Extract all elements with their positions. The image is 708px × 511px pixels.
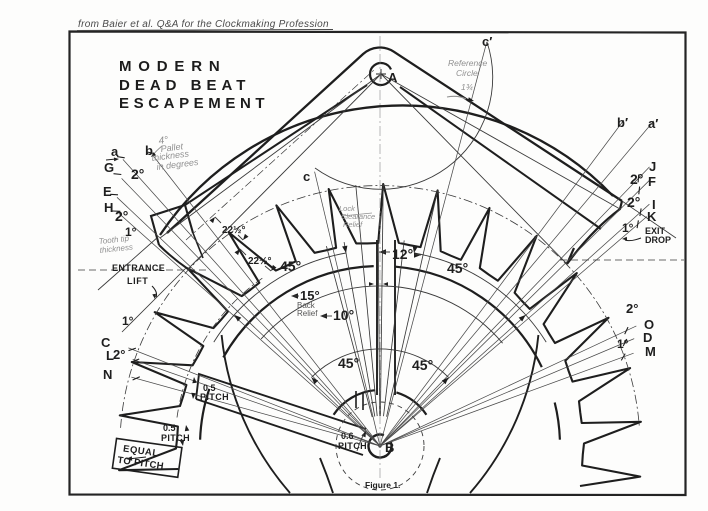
svg-text:45°: 45° xyxy=(280,258,301,274)
svg-text:B: B xyxy=(385,440,394,455)
svg-text:2°: 2° xyxy=(115,208,128,224)
svg-text:Reference: Reference xyxy=(448,58,487,68)
svg-text:0.6: 0.6 xyxy=(341,431,354,441)
svg-text:0.5: 0.5 xyxy=(163,423,176,433)
svg-text:DROP: DROP xyxy=(645,235,671,245)
svg-text:a: a xyxy=(111,144,119,159)
svg-text:A: A xyxy=(388,70,398,85)
svg-text:Circle: Circle xyxy=(456,68,478,78)
svg-text:LIFT: LIFT xyxy=(127,276,148,286)
svg-text:ENTRANCE: ENTRANCE xyxy=(112,263,165,273)
svg-text:1°: 1° xyxy=(622,221,634,235)
svg-text:2°: 2° xyxy=(626,301,638,316)
svg-text:K: K xyxy=(647,209,657,224)
svg-text:1°: 1° xyxy=(617,337,629,351)
svg-text:b′: b′ xyxy=(617,115,628,130)
svg-text:2°: 2° xyxy=(627,194,640,210)
svg-text:2°: 2° xyxy=(131,166,144,182)
svg-text:a′: a′ xyxy=(648,116,658,131)
svg-text:MODERN: MODERN xyxy=(119,58,226,75)
svg-text:1¾: 1¾ xyxy=(461,82,473,92)
svg-text:2°: 2° xyxy=(113,347,125,362)
svg-text:H: H xyxy=(104,200,113,215)
svg-text:Relief: Relief xyxy=(297,309,318,318)
svg-text:c: c xyxy=(303,169,310,184)
svg-text:J: J xyxy=(649,159,656,174)
svg-text:10°: 10° xyxy=(333,307,354,323)
svg-text:from Baier et al. Q&A for the: from Baier et al. Q&A for the Clockmakin… xyxy=(78,19,329,30)
svg-text:45°: 45° xyxy=(447,260,468,276)
svg-text:PITCH: PITCH xyxy=(200,392,229,402)
svg-text:22½°: 22½° xyxy=(248,256,271,267)
svg-text:M: M xyxy=(645,344,656,359)
svg-text:DEAD BEAT: DEAD BEAT xyxy=(119,77,250,94)
svg-text:Relief: Relief xyxy=(343,220,363,229)
svg-text:Figure 1.: Figure 1. xyxy=(365,480,400,490)
svg-text:22½°: 22½° xyxy=(222,225,245,236)
svg-text:D: D xyxy=(643,330,652,345)
svg-text:c′: c′ xyxy=(482,34,492,49)
svg-text:45°: 45° xyxy=(338,355,359,371)
svg-text:E: E xyxy=(103,184,112,199)
svg-text:2°: 2° xyxy=(630,171,643,187)
svg-text:ESCAPEMENT: ESCAPEMENT xyxy=(119,95,269,112)
svg-text:1°: 1° xyxy=(122,314,134,328)
svg-text:G: G xyxy=(104,160,114,175)
svg-text:PITCH: PITCH xyxy=(161,433,190,443)
svg-text:F: F xyxy=(648,174,656,189)
svg-text:12°: 12° xyxy=(392,246,413,262)
svg-text:N: N xyxy=(103,367,112,382)
svg-text:PITCH: PITCH xyxy=(338,441,367,451)
svg-text:45°: 45° xyxy=(412,357,433,373)
